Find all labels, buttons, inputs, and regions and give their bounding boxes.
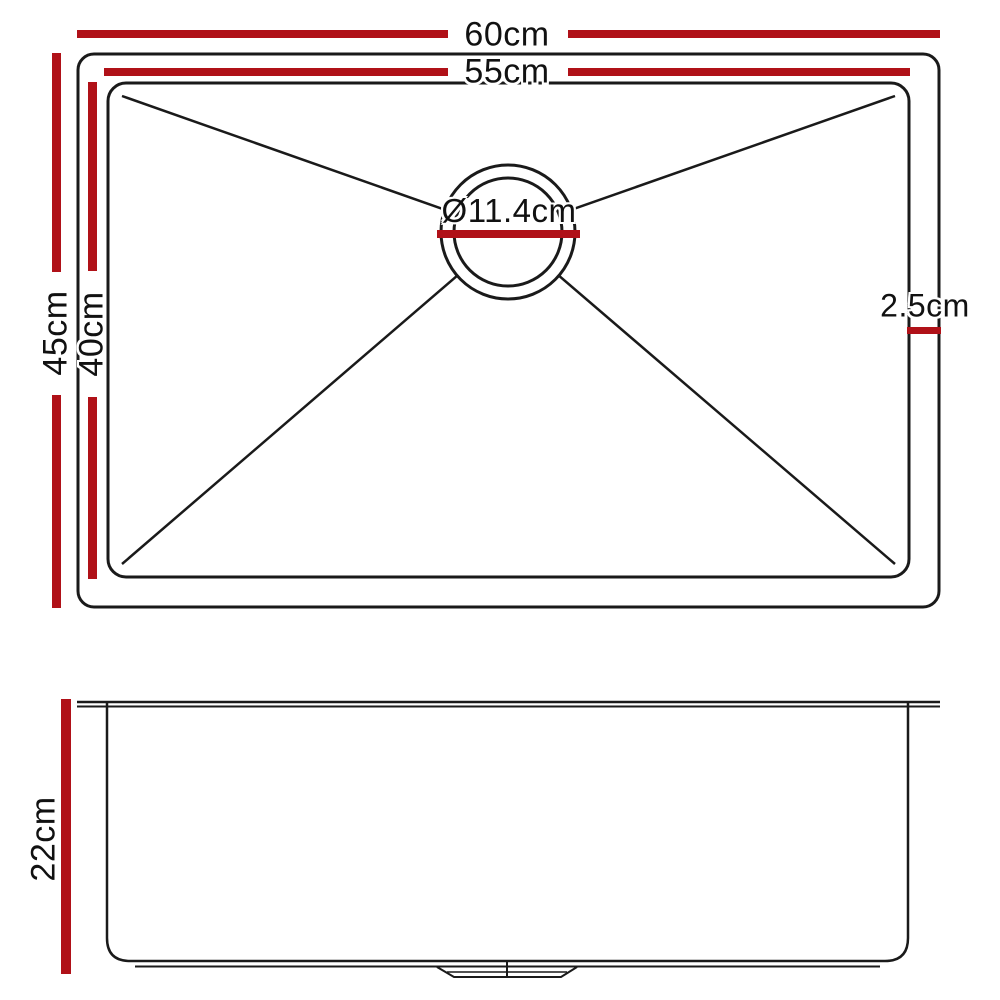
dim-60cm-bar-left — [77, 30, 448, 38]
dim-label-outer-depth: 45cm — [37, 290, 76, 375]
dim-2-5cm-bar — [907, 327, 941, 334]
dim-55cm-bar-left — [104, 68, 448, 76]
bowl-outline — [107, 702, 908, 961]
dim-60cm-bar-right — [568, 30, 940, 38]
dim-label-outer-width: 60cm — [464, 16, 549, 55]
outer-rim-rect — [78, 54, 939, 607]
dim-45cm-bar-top — [52, 53, 61, 272]
dim-label-drain-diameter: Ø11.4cm — [442, 192, 577, 230]
dim-label-bowl-depth: 22cm — [25, 796, 64, 881]
inner-bowl-rect — [108, 83, 909, 577]
dim-40cm-bar-bottom — [88, 397, 97, 579]
sink-top-view — [78, 54, 939, 607]
sink-dimension-diagram: 60cm 55cm 45cm 40cm Ø11.4cm 2.5cm 22cm — [0, 0, 1000, 1000]
dim-drain-diameter-bar — [437, 230, 580, 238]
diagonal-bottom-right — [508, 232, 895, 564]
dim-40cm-bar-top — [88, 82, 97, 271]
dim-label-rim-width: 2.5cm — [880, 288, 970, 325]
diagram-linework — [0, 0, 1000, 1000]
sink-side-view — [77, 702, 940, 977]
dim-label-inner-depth: 40cm — [73, 291, 112, 376]
diagonal-bottom-left — [122, 232, 508, 564]
dim-label-inner-width: 55cm — [464, 53, 549, 92]
dim-55cm-bar-right — [568, 68, 910, 76]
dim-45cm-bar-bottom — [52, 395, 61, 608]
